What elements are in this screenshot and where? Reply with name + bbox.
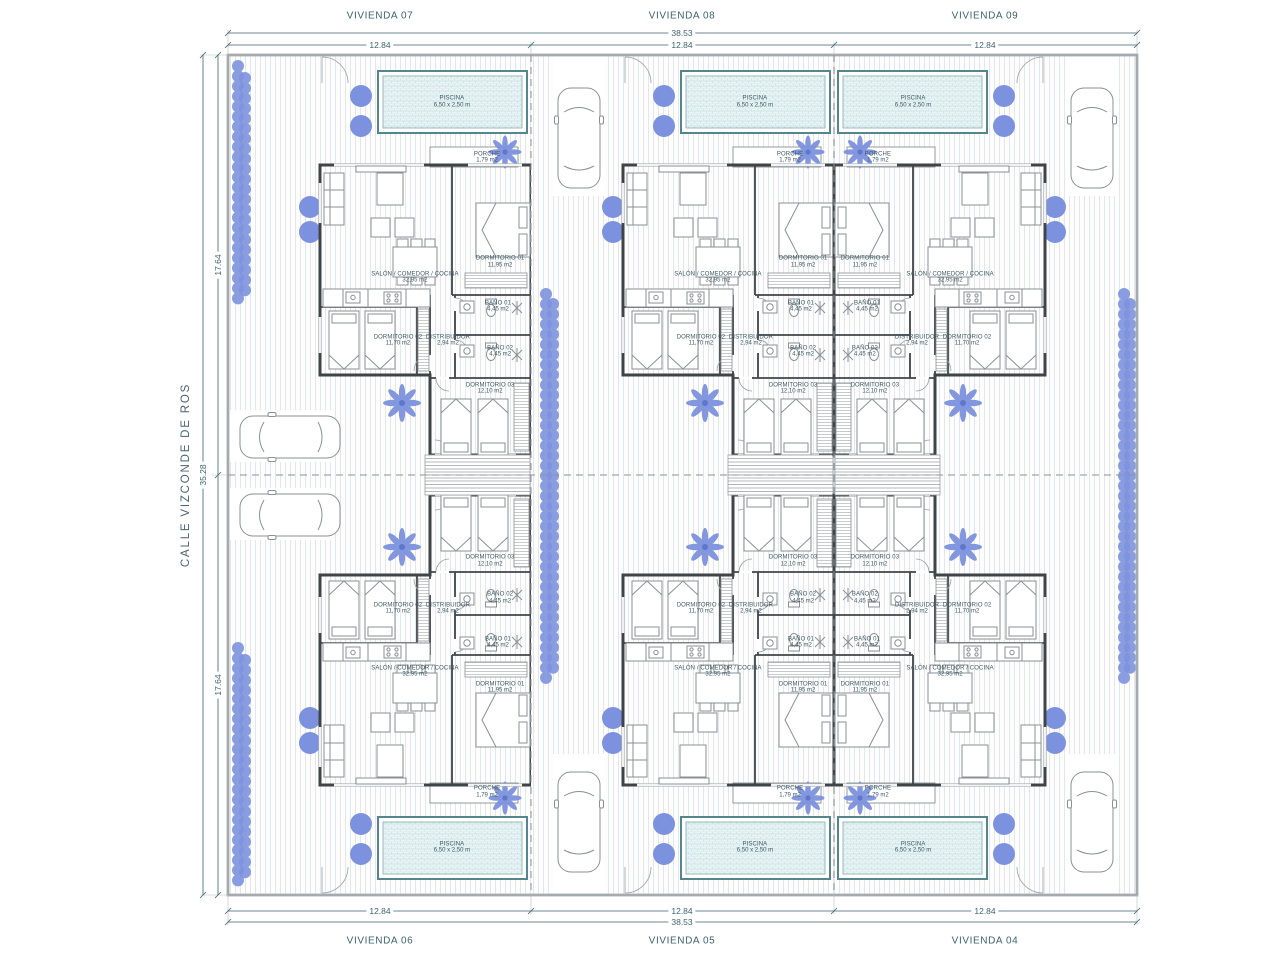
room-label-dormitorio-01: DORMITORIO 0111,95 m2	[476, 681, 525, 694]
room-label-salon-comedor-cocina: SALÓN / COMEDOR / COCINA32,95 m2	[674, 272, 761, 285]
room-label-distribuidor: DISTRIBUIDOR2,94 m2	[729, 603, 773, 616]
dim-overall-depth: 35.28	[198, 461, 208, 488]
dim-half-depth-top: 17.64	[213, 251, 223, 278]
room-label-dormitorio-01: DORMITORIO 0111,95 m2	[779, 256, 828, 269]
room-label-dormitorio-02: DORMITORIO 0211,70 m2	[374, 603, 423, 616]
dim-half-depth-bottom: 17.64	[213, 671, 223, 698]
room-label-dormitorio-02: DORMITORIO 0211,70 m2	[943, 335, 992, 348]
room-label-dormitorio-02: DORMITORIO 0211,70 m2	[374, 335, 423, 348]
room-label-salon-comedor-cocina: SALÓN / COMEDOR / COCINA32,95 m2	[906, 272, 993, 285]
room-label-salon-comedor-cocina: SALÓN / COMEDOR / COCINA32,95 m2	[371, 666, 458, 679]
room-label-bano-01: BAÑO 014,45 m2	[788, 301, 814, 314]
room-label-bano-02: BAÑO 024,45 m2	[790, 345, 816, 358]
room-label-porche: PORCHE1,79 m2	[865, 786, 891, 799]
room-label-dormitorio-03: DORMITORIO 0312,10 m2	[466, 555, 515, 568]
dim-overall-width-bottom: 38.53	[668, 917, 695, 927]
room-label-dormitorio-03: DORMITORIO 0312,10 m2	[769, 382, 818, 395]
dim-unit-width-top-1: 12.84	[366, 40, 393, 50]
unit-label-vivienda-04: VIVIENDA 04	[952, 936, 1019, 947]
dim-unit-width-bottom-2: 12.84	[668, 906, 695, 916]
room-label-bano-01: BAÑO 014,45 m2	[485, 637, 511, 650]
room-label-porche: PORCHE1,79 m2	[777, 786, 803, 799]
unit-label-vivienda-06: VIVIENDA 06	[347, 936, 414, 947]
dim-unit-width-top-3: 12.84	[971, 40, 998, 50]
dim-overall-width-top: 38.53	[668, 28, 695, 38]
room-label-porche: PORCHE1,79 m2	[474, 786, 500, 799]
room-label-bano-01: BAÑO 014,45 m2	[854, 637, 880, 650]
room-label-salon-comedor-cocina: SALÓN / COMEDOR / COCINA32,95 m2	[371, 272, 458, 285]
room-label-dormitorio-02: DORMITORIO 0211,70 m2	[943, 603, 992, 616]
room-label-dormitorio-02: DORMITORIO 0211,70 m2	[677, 603, 726, 616]
room-label-dormitorio-01: DORMITORIO 0111,95 m2	[779, 681, 828, 694]
site-plan-drawing	[0, 0, 1280, 960]
room-label-bano-01: BAÑO 014,45 m2	[485, 301, 511, 314]
room-label-dormitorio-03: DORMITORIO 0312,10 m2	[769, 555, 818, 568]
room-label-piscina: PISCINA6,50 x 2,50 m	[434, 96, 470, 109]
room-label-bano-02: BAÑO 024,45 m2	[790, 592, 816, 605]
room-label-bano-02: BAÑO 024,45 m2	[852, 592, 878, 605]
room-label-bano-01: BAÑO 014,45 m2	[788, 637, 814, 650]
unit-label-vivienda-08: VIVIENDA 08	[649, 11, 716, 22]
unit-label-vivienda-05: VIVIENDA 05	[649, 936, 716, 947]
room-label-bano-02: BAÑO 024,45 m2	[487, 592, 513, 605]
room-label-piscina: PISCINA6,50 x 2,50 m	[895, 841, 931, 854]
room-label-dormitorio-03: DORMITORIO 0312,10 m2	[851, 555, 900, 568]
dim-unit-width-top-2: 12.84	[668, 40, 695, 50]
room-label-distribuidor: DISTRIBUIDOR2,94 m2	[895, 603, 939, 616]
room-label-dormitorio-03: DORMITORIO 0312,10 m2	[851, 382, 900, 395]
dim-unit-width-bottom-1: 12.84	[366, 906, 393, 916]
floor-plan-page: VIVIENDA 07 VIVIENDA 08 VIVIENDA 09 VIVI…	[0, 0, 1280, 960]
room-label-distribuidor: DISTRIBUIDOR2,94 m2	[426, 603, 470, 616]
room-label-bano-01: BAÑO 014,45 m2	[854, 301, 880, 314]
room-label-dormitorio-02: DORMITORIO 0211,70 m2	[677, 335, 726, 348]
room-label-bano-02: BAÑO 024,45 m2	[852, 345, 878, 358]
room-label-salon-comedor-cocina: SALÓN / COMEDOR / COCINA32,95 m2	[674, 666, 761, 679]
room-label-porche: PORCHE1,79 m2	[777, 151, 803, 164]
room-label-distribuidor: DISTRIBUIDOR2,94 m2	[729, 335, 773, 348]
room-label-piscina: PISCINA6,50 x 2,50 m	[737, 841, 773, 854]
street-name-label: CALLE VIZCONDE DE ROS	[180, 383, 192, 567]
room-label-piscina: PISCINA6,50 x 2,50 m	[737, 96, 773, 109]
room-label-porche: PORCHE1,79 m2	[865, 151, 891, 164]
room-label-bano-02: BAÑO 024,45 m2	[487, 345, 513, 358]
room-label-piscina: PISCINA6,50 x 2,50 m	[895, 96, 931, 109]
room-label-distribuidor: DISTRIBUIDOR2,94 m2	[895, 335, 939, 348]
room-label-salon-comedor-cocina: SALÓN / COMEDOR / COCINA32,95 m2	[906, 666, 993, 679]
unit-label-vivienda-09: VIVIENDA 09	[952, 11, 1019, 22]
room-label-distribuidor: DISTRIBUIDOR2,94 m2	[426, 335, 470, 348]
dim-unit-width-bottom-3: 12.84	[971, 906, 998, 916]
room-label-piscina: PISCINA6,50 x 2,50 m	[434, 841, 470, 854]
room-label-dormitorio-01: DORMITORIO 0111,95 m2	[476, 256, 525, 269]
room-label-dormitorio-03: DORMITORIO 0312,10 m2	[466, 382, 515, 395]
room-label-dormitorio-01: DORMITORIO 0111,95 m2	[841, 256, 890, 269]
unit-label-vivienda-07: VIVIENDA 07	[347, 11, 414, 22]
room-label-porche: PORCHE1,79 m2	[474, 151, 500, 164]
room-label-dormitorio-01: DORMITORIO 0111,95 m2	[841, 681, 890, 694]
